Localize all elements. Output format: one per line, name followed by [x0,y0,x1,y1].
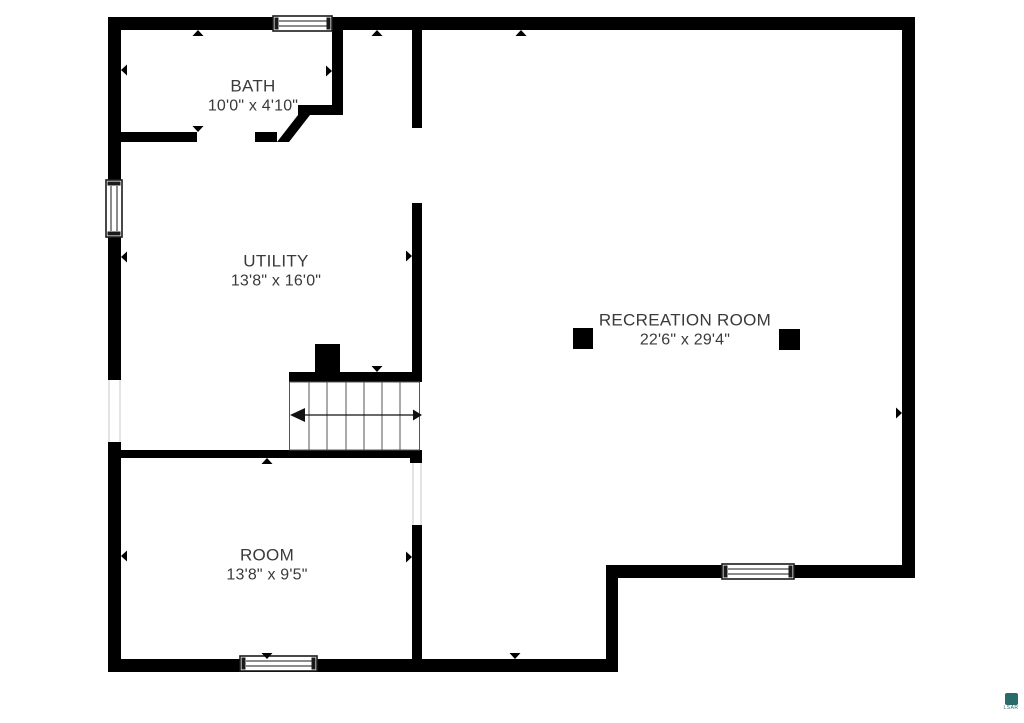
tick-right-icon [406,552,412,563]
tick-down-icon [510,653,521,659]
window-bath-top [273,16,332,31]
wall-top [108,17,915,30]
room-name: UTILITY [231,250,321,271]
post-right [779,329,800,350]
room-dimensions: 22'6" x 29'4" [599,331,771,351]
post-left [573,328,593,349]
wall-stairs-top [289,372,422,382]
wall-bath-diagonal [277,115,310,142]
wall-bath-bottom-right [255,132,277,142]
staircase [290,382,423,450]
wall-room-right [412,525,422,659]
room-name: ROOM [226,544,307,565]
wall-left-upper [108,17,121,180]
room-name: BATH [208,75,298,96]
wall-bath-bottom-left [121,132,197,142]
room-label-bath: BATH 10'0" x 4'10" [208,75,298,116]
tick-right-icon [896,408,902,419]
wall-left-lower [108,442,121,672]
tick-down-icon [372,366,383,372]
tick-up-icon [372,30,383,36]
wall-middle-lower [412,203,422,373]
floor-plan-page: BATH 10'0" x 4'10" UTILITY 13'8" x 16'0"… [0,0,1024,723]
opening-left-wall [108,380,121,442]
tick-up-icon [262,458,273,464]
mls-watermark: LSAR [1000,693,1022,712]
tick-up-icon [193,30,204,36]
tick-down-icon [193,126,204,132]
window-utility-left [106,180,122,237]
tick-left-icon [121,551,127,562]
opening-room-right-wall [412,463,422,525]
mls-logo-icon [1005,693,1018,705]
wall-bath-right [332,30,343,115]
tick-right-icon [326,66,332,77]
floor-plan-drawing [0,0,1024,723]
tick-left-icon [121,252,127,263]
room-dimensions: 13'8" x 9'5" [226,566,307,586]
wall-bottom [108,659,618,672]
chimney-block [315,344,340,372]
room-label-utility: UTILITY 13'8" x 16'0" [231,250,321,291]
wall-middle-upper [412,30,422,128]
wall-right [902,17,915,578]
wall-left-middle [108,237,121,380]
window-room-bottom [240,656,317,671]
tick-left-icon [121,65,127,76]
room-dimensions: 10'0" x 4'10" [208,97,298,117]
room-label-room: ROOM 13'8" x 9'5" [226,544,307,585]
wall-step-down [606,565,618,672]
window-recreation-bottom [722,564,794,579]
room-label-recreation: RECREATION ROOM 22'6" x 29'4" [599,309,771,350]
room-name: RECREATION ROOM [599,309,771,330]
tick-up-icon [516,30,527,36]
wall-room-top [121,450,422,458]
room-dimensions: 13'8" x 16'0" [231,272,321,292]
tick-right-icon [406,251,412,262]
mls-logo-text: LSAR [1000,705,1022,712]
wall-room-top-stub [410,458,422,463]
